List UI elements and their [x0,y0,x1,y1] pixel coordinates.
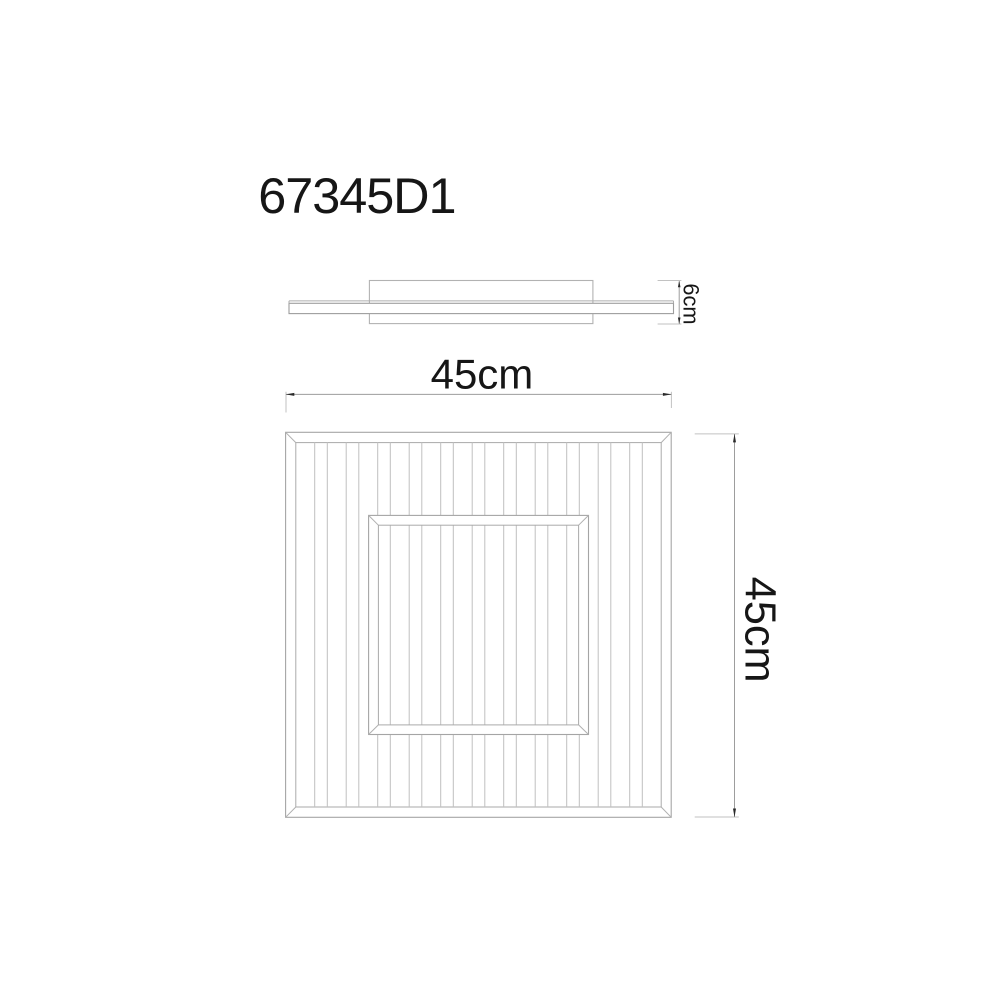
svg-text:67345D1: 67345D1 [258,167,455,224]
svg-text:45cm: 45cm [735,577,783,683]
svg-text:6cm: 6cm [678,283,703,324]
svg-text:45cm: 45cm [431,351,534,398]
